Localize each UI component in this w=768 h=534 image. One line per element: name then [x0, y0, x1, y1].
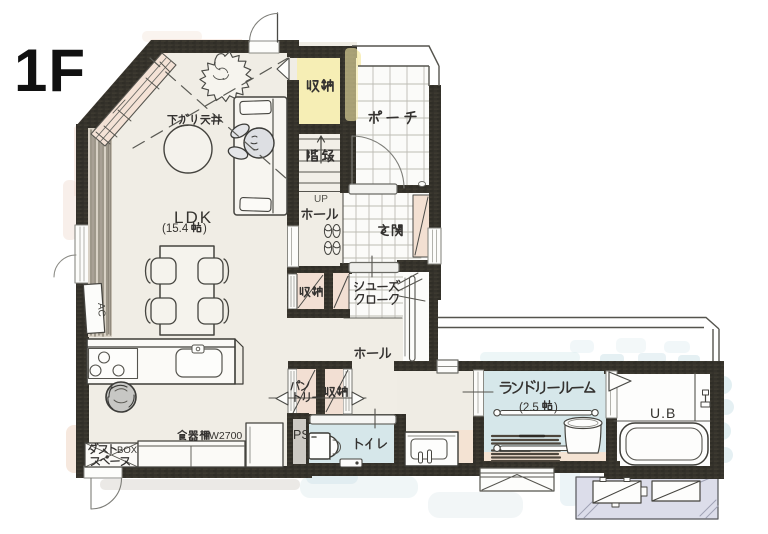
svg-text:): ) [203, 223, 207, 235]
svg-text:UP: UP [314, 194, 328, 205]
svg-text:BOX: BOX [117, 445, 138, 456]
svg-text:(15.4: (15.4 [162, 223, 189, 235]
svg-text:1F: 1F [14, 37, 86, 104]
svg-text:PS: PS [293, 428, 310, 442]
svg-text:U.B: U.B [650, 405, 676, 421]
svg-text:): ) [554, 402, 558, 414]
svg-text:(2.5: (2.5 [519, 402, 539, 414]
svg-text:AC: AC [95, 303, 107, 317]
svg-text:W2700: W2700 [209, 430, 242, 442]
